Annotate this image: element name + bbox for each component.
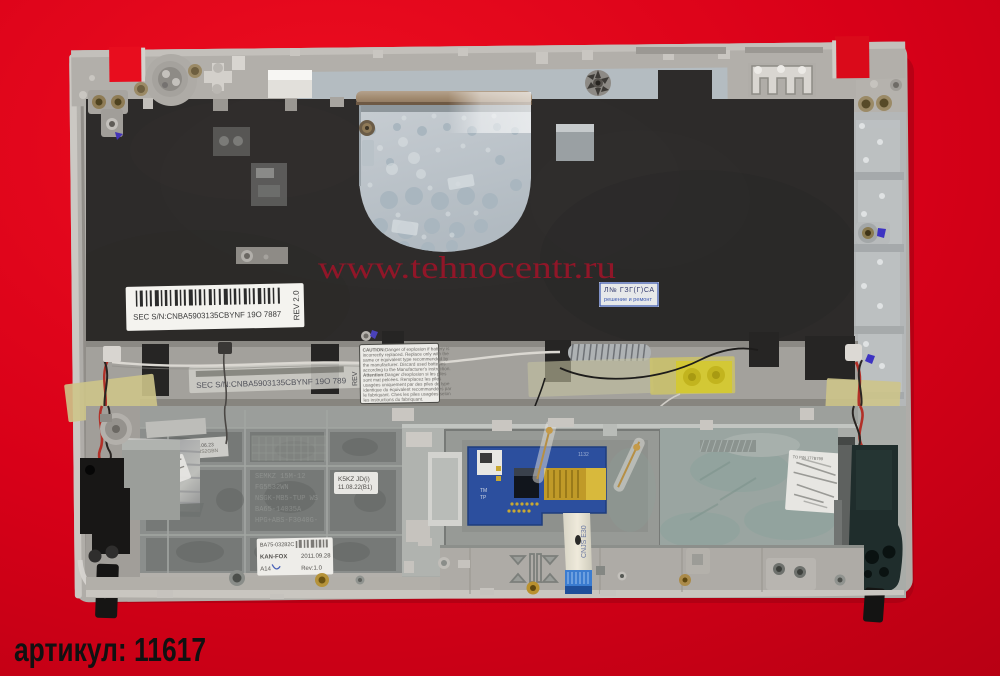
- svg-text:SEMKZ 15M-12: SEMKZ 15M-12: [255, 473, 305, 481]
- svg-text:TP: TP: [480, 495, 487, 501]
- svg-text:www.tehnocentr.ru: www.tehnocentr.ru: [318, 250, 616, 285]
- svg-text:les instructions du fabriquant: les instructions du fabriquant.: [363, 397, 423, 403]
- svg-text:CNJS E30: CNJS E30: [581, 525, 588, 558]
- svg-text:A14: A14: [260, 566, 271, 572]
- svg-text:REV 2.0: REV 2.0: [292, 290, 302, 321]
- svg-text:REV: REV: [352, 371, 359, 386]
- svg-text:Л№ ΓЗГ(Г)СА: Л№ ΓЗГ(Г)СА: [604, 287, 654, 294]
- svg-text:NSGK-MB5-TUP WS: NSGK-MB5-TUP WS: [255, 495, 318, 503]
- svg-text:решение и ремонт: решение и ремонт: [604, 297, 652, 303]
- svg-text:FG5532WN: FG5532WN: [255, 484, 289, 492]
- svg-text:BA65-14035A: BA65-14035A: [255, 506, 302, 514]
- svg-text:2011.09.28: 2011.09.28: [301, 553, 331, 560]
- svg-text:K5KZ JD(i): K5KZ JD(i): [338, 476, 370, 483]
- svg-text:KAN-FOX: KAN-FOX: [260, 554, 287, 560]
- svg-text:TM: TM: [480, 488, 487, 494]
- svg-text:11.08.22(B1): 11.08.22(B1): [338, 485, 372, 491]
- svg-text:BA75-03282C: BA75-03282C: [260, 542, 295, 549]
- svg-text:1132: 1132: [578, 452, 589, 458]
- svg-text:HPG+ABS-F3040G-: HPG+ABS-F3040G-: [255, 517, 318, 525]
- svg-text:артикул: 11617: артикул: 11617: [14, 631, 206, 668]
- svg-text:Rev:1.0: Rev:1.0: [301, 566, 322, 572]
